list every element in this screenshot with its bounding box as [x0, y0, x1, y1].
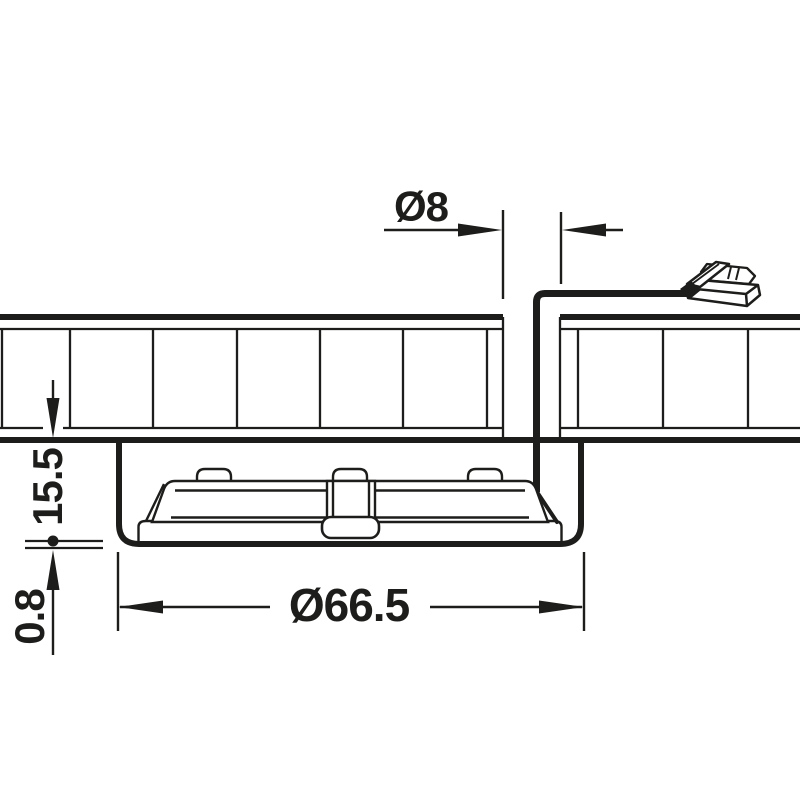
panel-hatch-lines [2, 330, 748, 427]
arrowhead-left-icon [562, 224, 606, 237]
cable-hole-edges [503, 317, 560, 440]
connector-plug [680, 262, 760, 306]
arrowhead-right-icon [458, 224, 502, 237]
arrowhead-left-icon [118, 601, 163, 614]
mounting-clip [322, 481, 379, 538]
light-fixture [119, 440, 581, 544]
dimension-label-housing-diameter: Ø66.5 [289, 582, 409, 628]
technical-diagram: Ø8 15.5 0.8 Ø66.5 [0, 0, 800, 800]
arrowhead-up-icon [47, 550, 60, 590]
arrowhead-down-icon [47, 398, 60, 438]
line-art [0, 0, 800, 800]
clip-handle [322, 517, 379, 538]
dimension-label-recess-depth: 15.5 [27, 448, 69, 526]
dimension-label-cable-hole: Ø8 [394, 186, 448, 228]
dimension-label-rim-thickness: 0.8 [9, 589, 51, 644]
arrowhead-right-icon [539, 601, 584, 614]
panel-cross-section [0, 317, 800, 440]
